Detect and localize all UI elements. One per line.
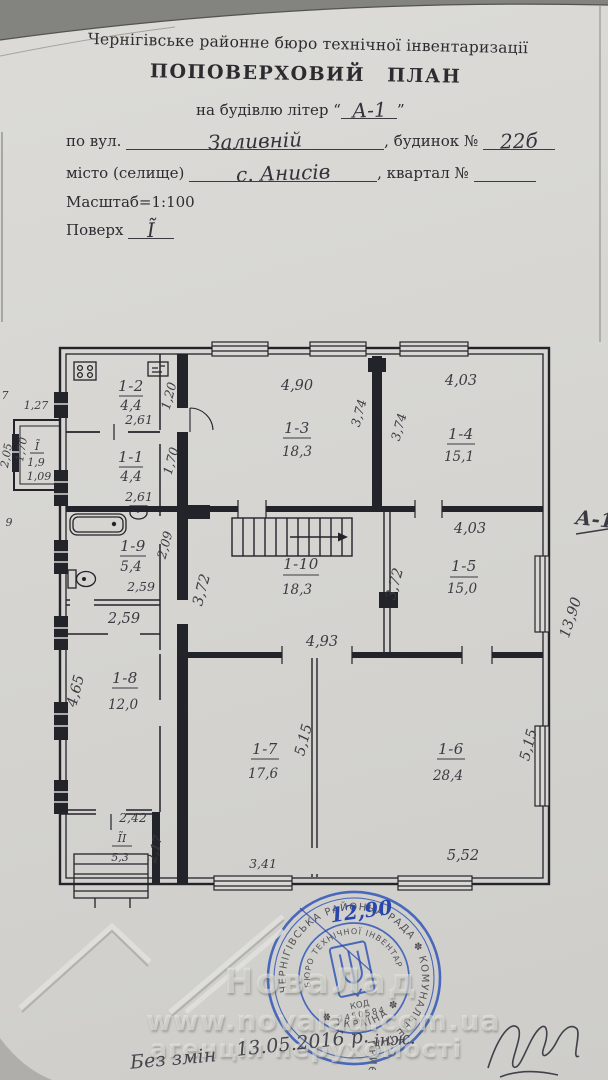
dim-fragment: 7: [2, 389, 9, 402]
room-id: 1-4: [448, 425, 474, 443]
porch-id: І̃І: [117, 831, 127, 845]
room-area: 17,6: [248, 766, 278, 782]
boiler-icon: [148, 362, 168, 376]
dim-label: 3,74: [388, 411, 410, 442]
bathtub-icon: [70, 514, 126, 535]
room-area: 5,4: [120, 559, 141, 575]
total-width-dim: 12,90: [328, 895, 393, 927]
dim-label: 4,65: [64, 673, 88, 709]
room-id: 1-7: [252, 740, 278, 758]
building-mark: А-1: [572, 505, 608, 534]
dim-label: 5,52: [447, 848, 479, 864]
dim-label: 3,72: [190, 572, 214, 607]
dim-label: 2,42: [118, 810, 147, 825]
signature: [488, 1026, 579, 1077]
room-labels: 1-2 4,4 1-1 4,4 1-3 18,3 1-4 15,1 1-9 5,…: [27, 377, 478, 864]
room-id: 1-2: [118, 377, 144, 395]
room-id: 1-5: [451, 557, 477, 575]
dim-label: 2,09: [154, 529, 176, 561]
staircase-icon: [232, 518, 352, 556]
porch-id: І̃: [34, 439, 41, 453]
dim-label: 4,90: [280, 378, 313, 394]
dim-label: 1,09: [27, 470, 52, 483]
room-area: 4,4: [119, 469, 141, 485]
dim-label: 2,61: [124, 412, 153, 427]
room-area: 18,3: [282, 582, 312, 598]
dim-label: 4,03: [453, 521, 486, 537]
porch-area: 1,9: [27, 456, 45, 469]
dim-label: 2,59: [126, 579, 155, 594]
dim-label: 2,61: [124, 489, 153, 504]
room-area: 12,0: [108, 697, 138, 713]
footer-engineer: інж.: [373, 1029, 416, 1052]
dim-label: 1,20: [158, 380, 180, 411]
fixtures: [68, 362, 168, 588]
dim-label: 4,03: [444, 373, 477, 389]
stove-icon: [74, 362, 96, 380]
room-id: 1-10: [283, 555, 319, 573]
room-id: 1-9: [120, 537, 146, 555]
room-area: 15,1: [444, 449, 474, 465]
dim-fragment: 9: [6, 516, 13, 529]
toilet-icon: [68, 570, 96, 588]
room-area: 15,0: [447, 581, 477, 597]
dim-label: 1,27: [24, 399, 49, 412]
dim-label: 13,90: [557, 596, 585, 640]
dim-label: 3,41: [249, 856, 277, 871]
dim-label: 2,17: [144, 833, 166, 865]
dim-label: 2,59: [107, 611, 140, 627]
room-area: 18,3: [282, 444, 312, 460]
dim-label: 3,72: [383, 566, 407, 601]
building-mark-label: А-1: [572, 505, 608, 533]
room-id: 1-6: [438, 740, 464, 758]
scanned-floor-plan-document: Чернігівське районне бюро технічної інве…: [0, 0, 608, 1080]
room-area: 28,4: [432, 768, 463, 784]
dim-label: 4,93: [305, 634, 338, 650]
room-id: 1-3: [284, 419, 310, 437]
porch-area: 5,3: [111, 851, 129, 864]
room-id: 1-1: [118, 448, 144, 466]
dim-label: 3,74: [348, 397, 370, 428]
room-id: 1-8: [112, 669, 138, 687]
